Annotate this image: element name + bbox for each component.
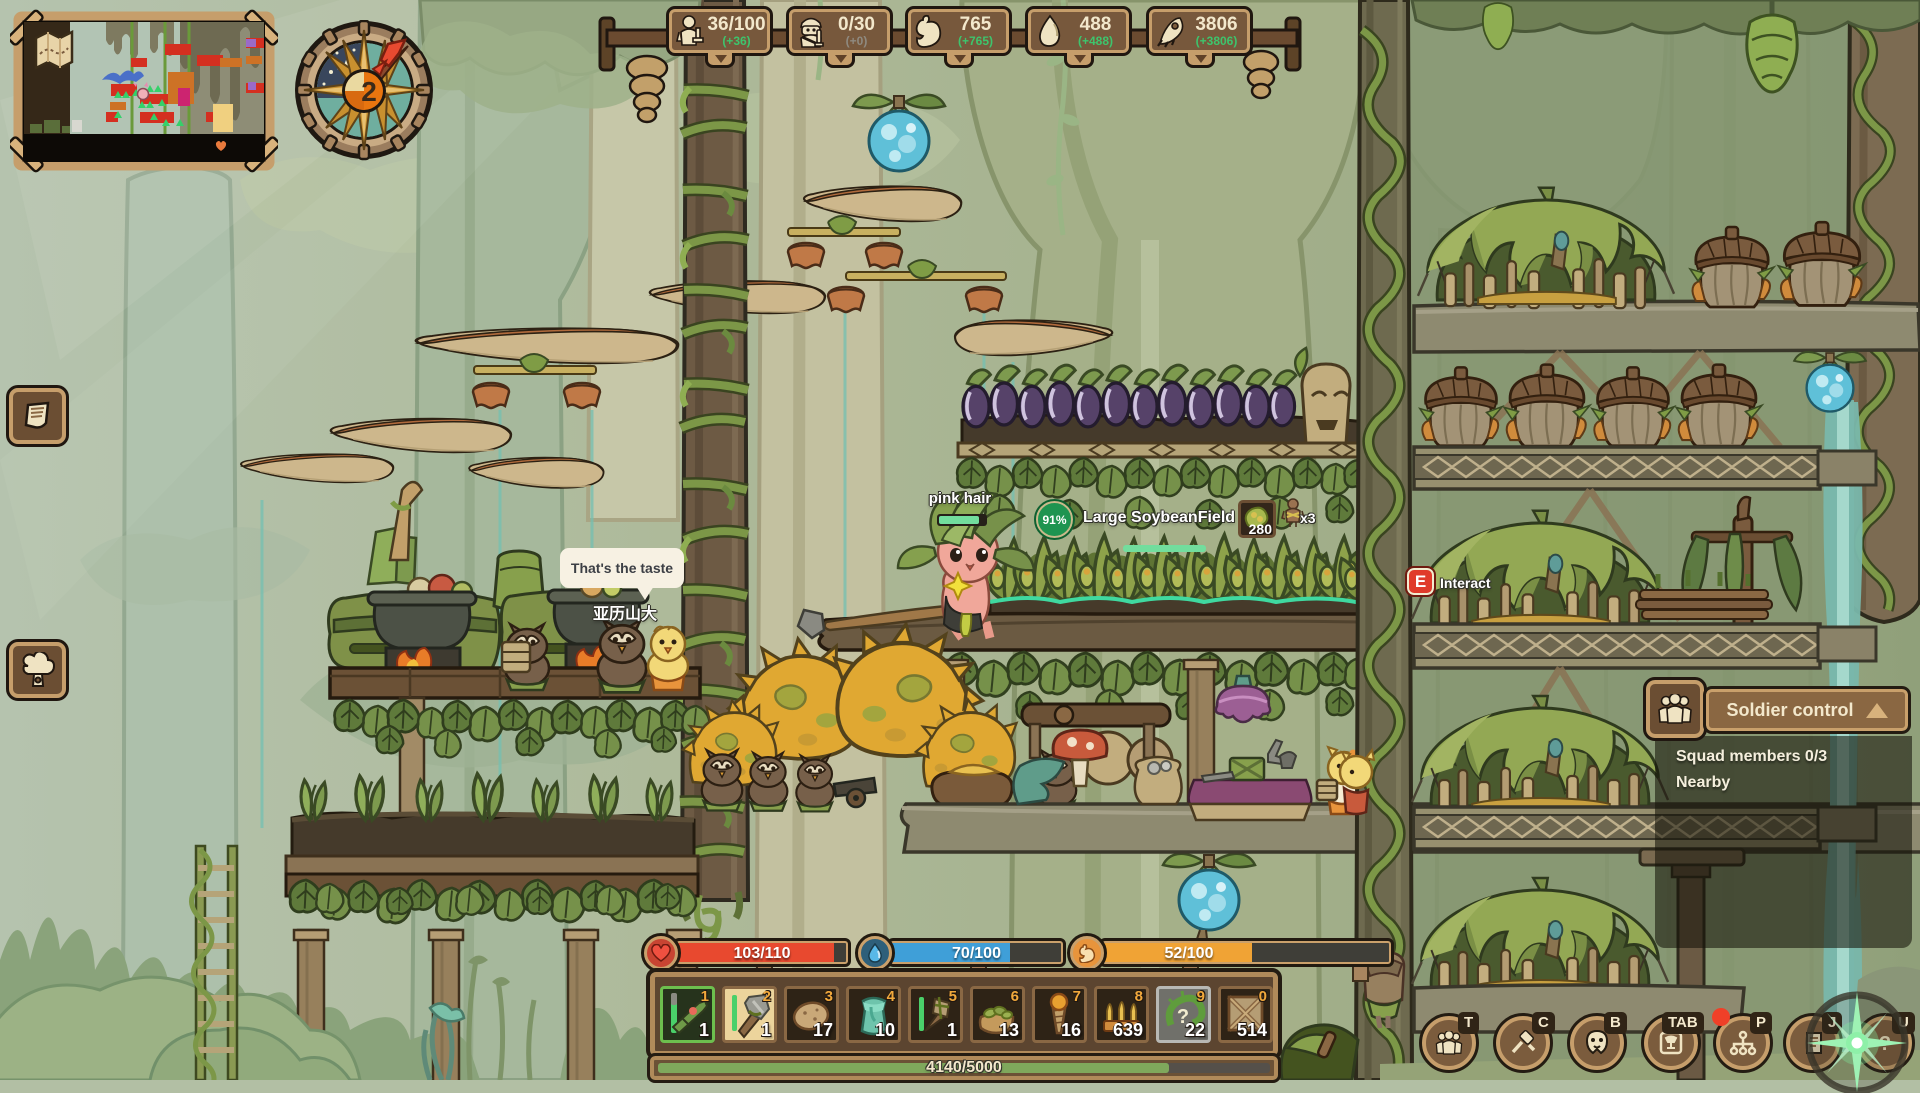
svg-text:2: 2 (361, 76, 377, 107)
